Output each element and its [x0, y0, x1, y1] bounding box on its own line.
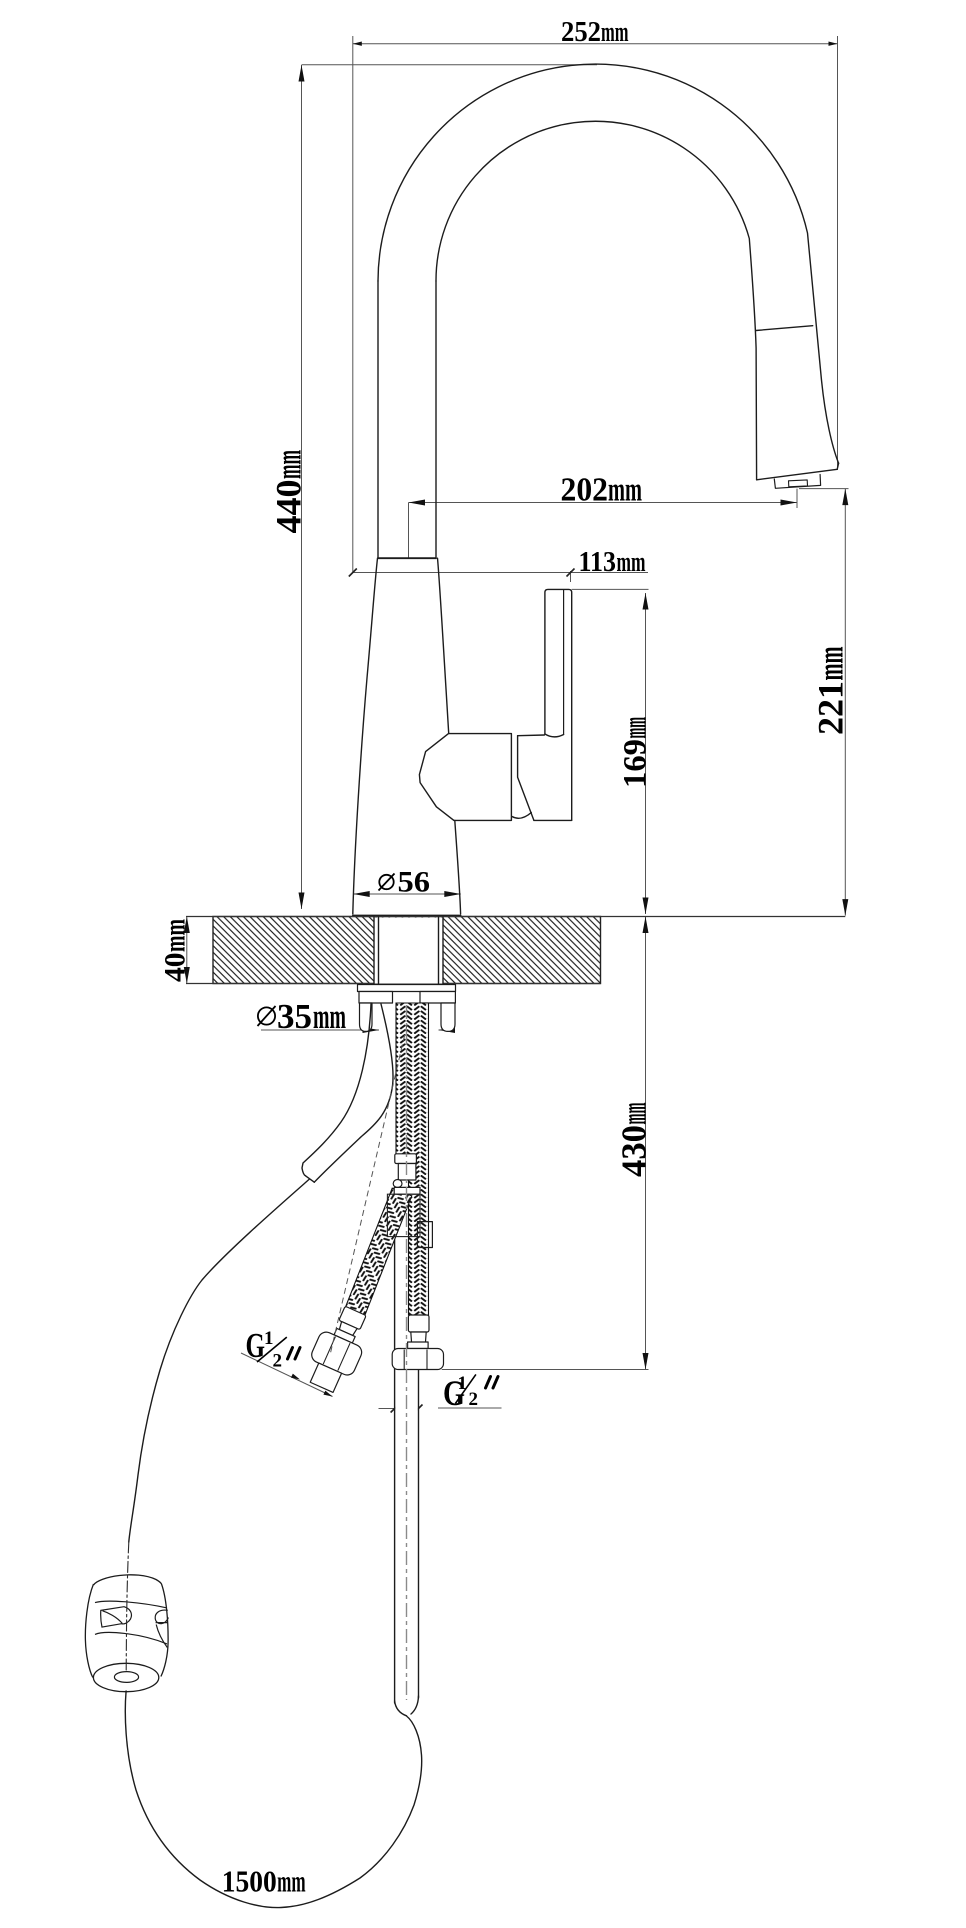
svg-text:mm: mm — [608, 472, 642, 509]
svg-text:1: 1 — [458, 1373, 468, 1394]
svg-text:mm: mm — [615, 1103, 654, 1125]
svg-text:252: 252 — [561, 17, 601, 48]
svg-text:2: 2 — [469, 1389, 479, 1410]
svg-text:mm: mm — [159, 919, 192, 952]
svg-text:mm: mm — [269, 450, 309, 479]
svg-text:113: 113 — [579, 547, 617, 578]
svg-text:mm: mm — [313, 997, 346, 1036]
svg-text:mm: mm — [601, 17, 629, 48]
svg-text:mm: mm — [811, 646, 851, 680]
svg-text:1500: 1500 — [222, 1864, 277, 1899]
svg-text:35: 35 — [277, 997, 312, 1036]
svg-text:202: 202 — [561, 472, 609, 509]
svg-text:2: 2 — [273, 1351, 283, 1372]
svg-text:56: 56 — [398, 866, 431, 899]
svg-text:430: 430 — [615, 1125, 654, 1177]
svg-text:169: 169 — [618, 739, 654, 788]
svg-text:1: 1 — [264, 1328, 274, 1349]
svg-text:mm: mm — [618, 717, 654, 739]
svg-text:221: 221 — [811, 681, 851, 735]
svg-text:G: G — [246, 1326, 266, 1365]
svg-text:mm: mm — [617, 547, 646, 578]
svg-text:440: 440 — [269, 480, 309, 534]
svg-text:40: 40 — [159, 953, 192, 983]
svg-text:mm: mm — [277, 1864, 306, 1899]
